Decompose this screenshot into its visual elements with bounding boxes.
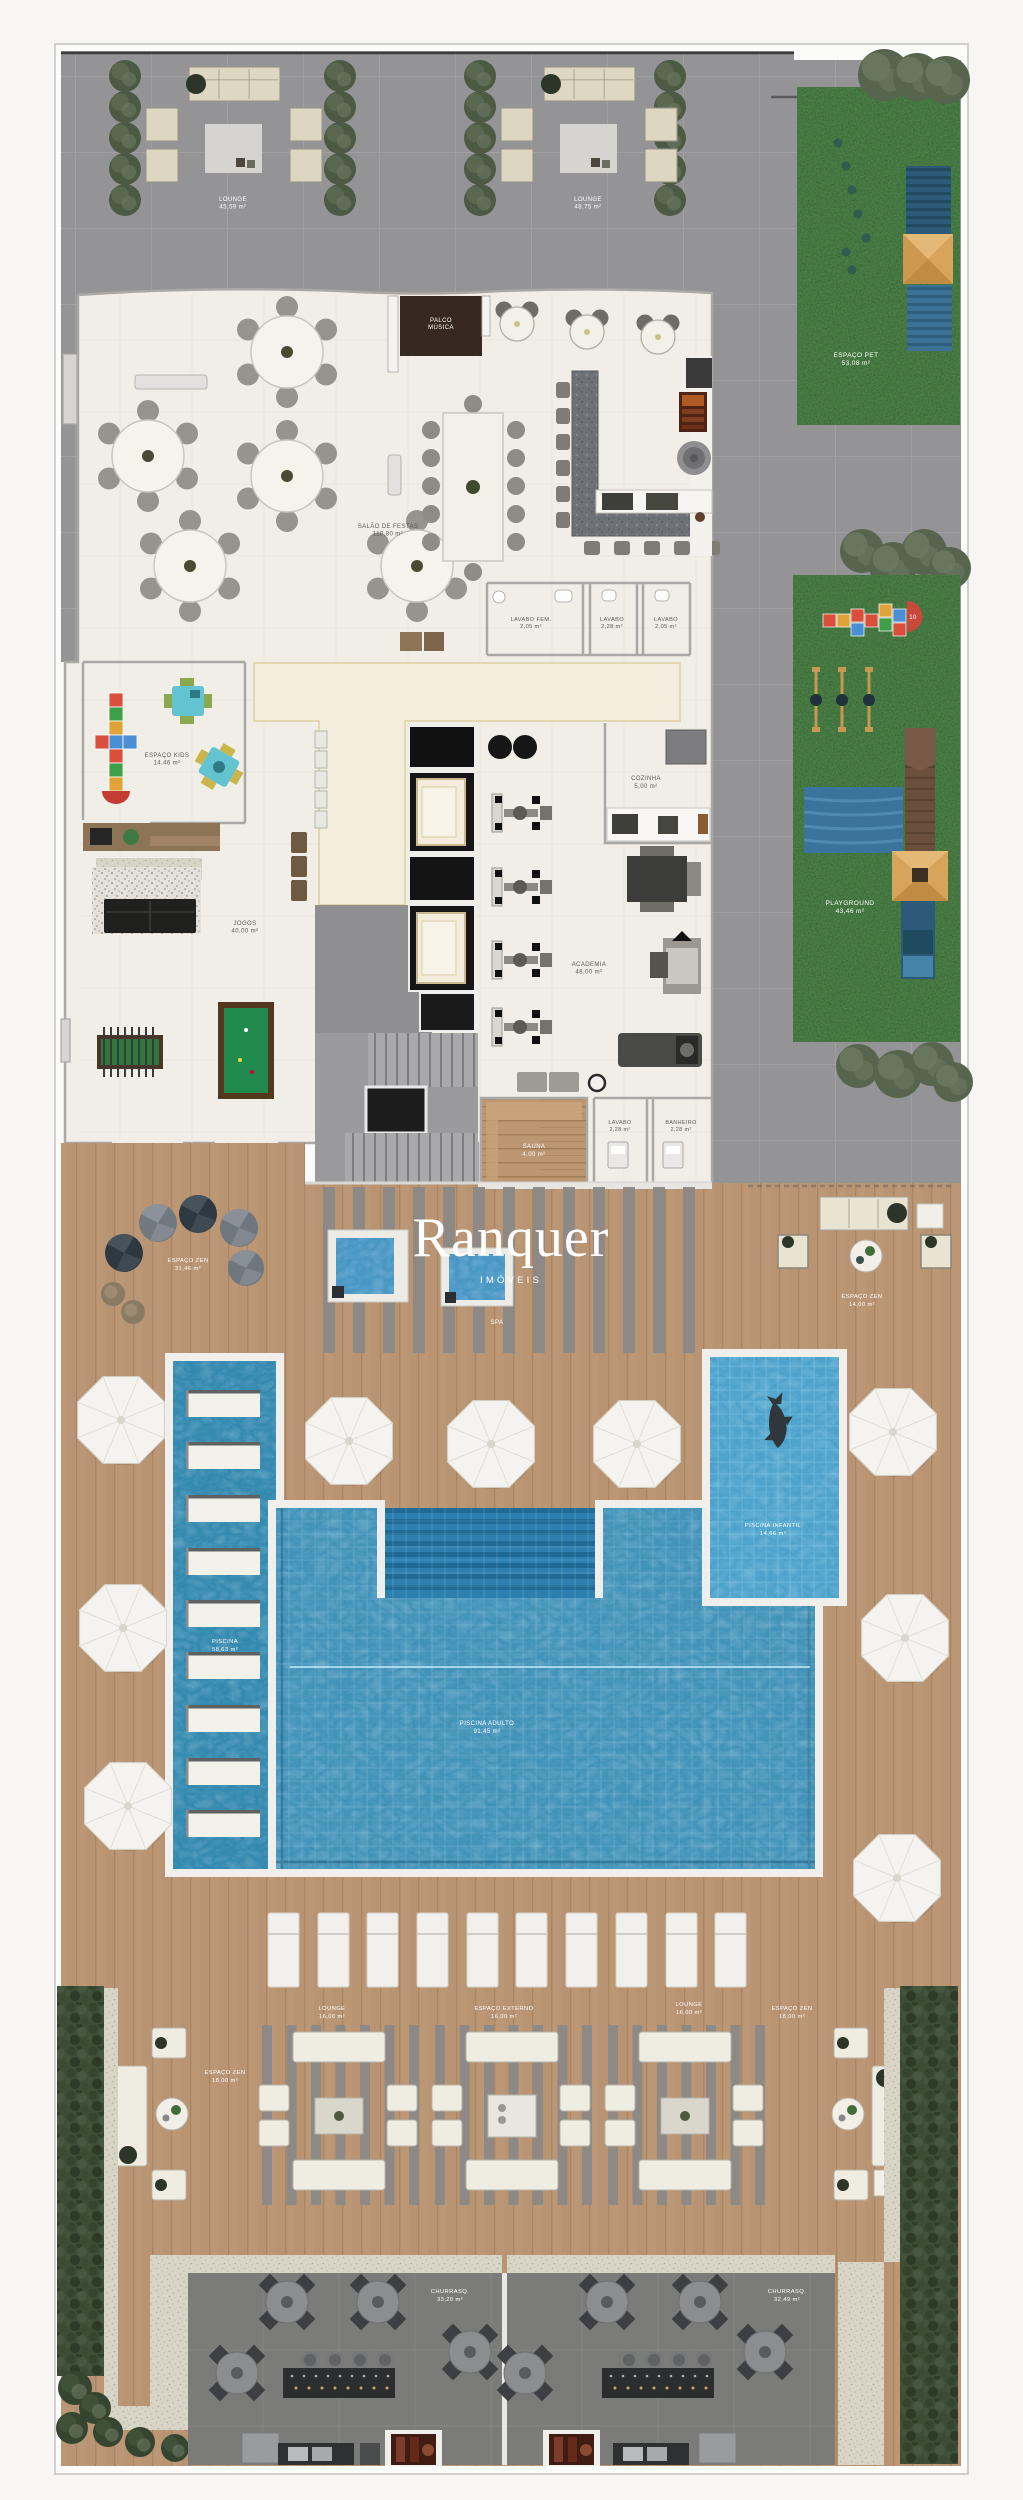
- svg-text:16,00 m²: 16,00 m²: [491, 2014, 517, 2020]
- svg-text:45,59 m²: 45,59 m²: [220, 205, 247, 211]
- svg-text:Ranquer: Ranquer: [413, 1207, 610, 1269]
- svg-text:LAVABO: LAVABO: [654, 617, 678, 623]
- svg-text:ESPAÇO ZEN: ESPAÇO ZEN: [205, 2070, 246, 2076]
- svg-text:40,00 m²: 40,00 m²: [232, 929, 259, 935]
- svg-text:CHURRASQ.: CHURRASQ.: [768, 2289, 806, 2295]
- svg-text:LOUNGE: LOUNGE: [676, 2002, 703, 2008]
- svg-text:110,80 m²: 110,80 m²: [373, 532, 403, 538]
- svg-text:18,00 m²: 18,00 m²: [779, 2014, 805, 2020]
- svg-text:16,00 m²: 16,00 m²: [319, 2014, 345, 2020]
- svg-text:SAUNA: SAUNA: [523, 1144, 546, 1150]
- svg-text:LOUNGE: LOUNGE: [319, 2006, 346, 2012]
- svg-text:14,00 m²: 14,00 m²: [849, 1302, 875, 1308]
- svg-text:2,28 m²: 2,28 m²: [670, 1127, 691, 1133]
- svg-text:JOGOS: JOGOS: [233, 921, 256, 927]
- svg-text:18,00 m²: 18,00 m²: [212, 2078, 238, 2084]
- svg-text:PLAYGROUND: PLAYGROUND: [825, 900, 874, 907]
- svg-text:BANHEIRO: BANHEIRO: [665, 1120, 696, 1126]
- svg-text:ESPAÇO KIDS: ESPAÇO KIDS: [145, 753, 190, 759]
- svg-text:2,28 m²: 2,28 m²: [609, 1127, 630, 1133]
- svg-text:91,45 m²: 91,45 m²: [474, 1729, 501, 1735]
- svg-text:33,20 m²: 33,20 m²: [437, 2297, 463, 2303]
- svg-text:48,75 m²: 48,75 m²: [575, 205, 602, 211]
- svg-text:PALCO: PALCO: [430, 318, 452, 324]
- svg-text:COZINHA: COZINHA: [631, 776, 661, 782]
- svg-text:SALÃO DE FESTAS: SALÃO DE FESTAS: [358, 523, 419, 530]
- svg-text:2,05 m²: 2,05 m²: [520, 624, 542, 630]
- svg-text:16,00 m²: 16,00 m²: [676, 2010, 702, 2016]
- svg-text:32,49 m²: 32,49 m²: [774, 2297, 800, 2303]
- svg-text:IMÓVEIS: IMÓVEIS: [480, 1275, 542, 1286]
- svg-text:31,46 m²: 31,46 m²: [175, 1266, 201, 1272]
- svg-text:10: 10: [909, 615, 917, 621]
- svg-text:SPA: SPA: [491, 1320, 504, 1326]
- svg-text:LOUNGE: LOUNGE: [219, 197, 247, 203]
- svg-text:LAVABO: LAVABO: [600, 617, 624, 623]
- svg-text:ACADEMIA: ACADEMIA: [572, 962, 607, 968]
- svg-text:2,28 m²: 2,28 m²: [601, 624, 623, 630]
- svg-text:14,66 m²: 14,66 m²: [760, 1531, 786, 1537]
- svg-text:14,46 m²: 14,46 m²: [154, 761, 181, 767]
- svg-text:4,00 m²: 4,00 m²: [522, 1152, 545, 1158]
- svg-text:PISCINA INFANTIL: PISCINA INFANTIL: [745, 1523, 802, 1529]
- svg-text:ESPAÇO EXTERNO: ESPAÇO EXTERNO: [475, 2006, 534, 2012]
- svg-text:43,46 m²: 43,46 m²: [836, 908, 865, 915]
- svg-text:58,63 m²: 58,63 m²: [212, 1647, 238, 1653]
- svg-text:LOUNGE: LOUNGE: [574, 197, 602, 203]
- svg-text:5,00 m²: 5,00 m²: [634, 784, 657, 790]
- svg-text:LAVABO FEM.: LAVABO FEM.: [511, 617, 552, 623]
- svg-text:LAVABO: LAVABO: [608, 1120, 631, 1126]
- svg-text:2,05 m²: 2,05 m²: [655, 624, 677, 630]
- svg-text:ESPAÇO ZEN: ESPAÇO ZEN: [842, 1294, 883, 1300]
- svg-text:PISCINA: PISCINA: [212, 1639, 238, 1645]
- svg-text:53,08 m²: 53,08 m²: [842, 360, 871, 367]
- svg-text:48,00 m²: 48,00 m²: [576, 970, 603, 976]
- svg-text:ESPAÇO ZEN: ESPAÇO ZEN: [772, 2006, 813, 2012]
- svg-text:ESPAÇO PET: ESPAÇO PET: [833, 352, 878, 359]
- svg-text:ESPAÇO ZEN: ESPAÇO ZEN: [168, 1258, 209, 1264]
- svg-text:CHURRASQ.: CHURRASQ.: [431, 2289, 469, 2295]
- svg-text:MÚSICA: MÚSICA: [428, 324, 454, 331]
- svg-text:PISCINA ADULTO: PISCINA ADULTO: [460, 1721, 514, 1727]
